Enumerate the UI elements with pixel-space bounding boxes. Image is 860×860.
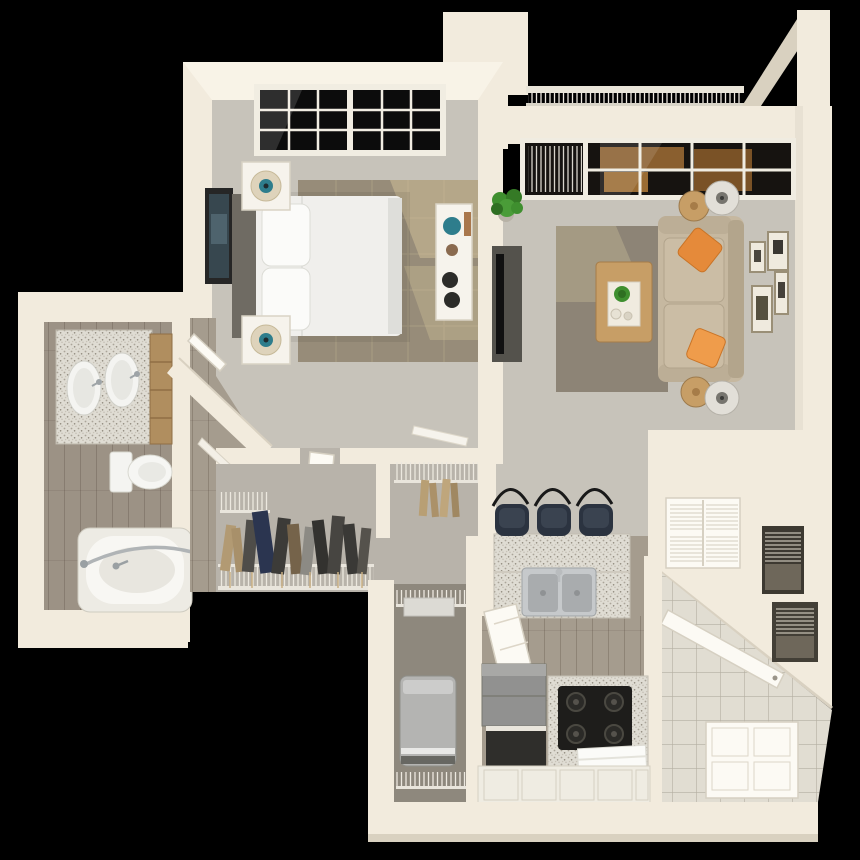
washer-dryer [400, 676, 456, 766]
nightstand-lamp-top [251, 171, 281, 201]
entry-hall [648, 430, 832, 802]
lamp-drum-finial [720, 196, 724, 200]
laundry-shelf-bottom [396, 772, 468, 788]
laundry-shelf-bottom-rail [396, 786, 468, 789]
sliding-door-vertical-blinds [528, 146, 582, 192]
vanity [56, 330, 172, 444]
kitchen-corner-wall [466, 536, 496, 618]
linen-niche-2 [772, 602, 818, 662]
bedroom-window [254, 84, 446, 156]
dresser-tray-2 [444, 292, 460, 308]
lamp-finial [264, 338, 269, 343]
dresser [436, 204, 472, 320]
side-table-top-center [690, 202, 698, 210]
niche-shelf-shadow [765, 564, 801, 590]
louvered-closet-doors [666, 498, 740, 568]
laundry-storage-box [404, 598, 454, 616]
coffee-table-plate-2 [624, 312, 632, 320]
balcony-railing-top-rail [526, 86, 744, 93]
sink-drain-right [574, 590, 580, 596]
bathroom [18, 292, 192, 648]
entry-flat-door [706, 722, 798, 798]
lamp-finial [264, 184, 269, 189]
washer-control-panel [403, 680, 453, 694]
floor-plan-canvas [0, 0, 860, 860]
stool-seat-top [541, 508, 567, 528]
vanity-sink-2-basin [111, 360, 133, 400]
kitchen-sink [522, 568, 596, 616]
shelf-wires-right [394, 462, 478, 482]
bathroom-left-wall [18, 292, 44, 648]
coffee-table [596, 262, 652, 342]
floor-lamp-bottom [705, 381, 739, 415]
range [548, 676, 648, 771]
nightstand-lamp-bottom [251, 325, 281, 355]
shower-head [80, 560, 88, 568]
sink-drain-left [540, 590, 546, 596]
vanity-sink-1-basin [73, 368, 95, 408]
floor-lamp-top [705, 181, 739, 215]
fridge-top [482, 664, 546, 676]
washer-base [401, 756, 455, 764]
niche-shelf-shadow [776, 636, 814, 658]
closet-divider-wall [376, 464, 390, 538]
television [496, 254, 504, 354]
burner-cap [573, 731, 579, 737]
plant-leaf [491, 203, 503, 215]
sofa [658, 216, 744, 382]
niche-blinds [765, 530, 801, 562]
plant-leaf [511, 202, 523, 214]
side-table-bottom-center [692, 388, 700, 396]
shelf-wires-upper [220, 492, 270, 512]
shelf-right-rail [394, 480, 478, 483]
dresser-teal-vase [443, 217, 461, 235]
bedroom-art-detail [211, 214, 227, 244]
louver-slats [670, 504, 702, 530]
bottom-outer-wall-edge [368, 834, 818, 842]
bathtub [78, 528, 192, 612]
bed-duvet-edge [388, 198, 402, 334]
balcony-wall-column-right [797, 10, 830, 120]
vanity-wood-cabinets [150, 334, 172, 444]
washer-trim [401, 748, 455, 754]
tv-console [492, 246, 522, 362]
dishwasher-top-edge [486, 726, 546, 731]
toilet-seat [138, 462, 166, 482]
sofa-backrest [728, 220, 744, 378]
linen-niche-1 [762, 526, 804, 594]
louver-slats [706, 504, 738, 530]
cabinet-run [478, 766, 650, 804]
coffee-table-plant-center [618, 290, 626, 298]
entry-door-knob [773, 676, 778, 681]
dresser-photo-frame [464, 212, 471, 236]
wall-frame-4-art [778, 282, 785, 298]
refrigerator [482, 664, 546, 726]
wall-frame-2-art [773, 240, 783, 254]
dresser-candle [446, 244, 458, 256]
lamp-drum-finial [720, 396, 724, 400]
burner-cap [573, 699, 579, 705]
dishwasher [486, 726, 546, 766]
lower-cabinets [478, 766, 650, 804]
bathroom-bottom-wall [18, 610, 188, 648]
coffee-table-plate-1 [611, 309, 621, 319]
burner-cap [611, 699, 617, 705]
shelf-front-rail [218, 586, 374, 590]
bed-pillow-1 [262, 204, 310, 266]
stool-seat-top [499, 508, 525, 528]
bedroom-wall-art [205, 188, 233, 284]
burner-cap [611, 731, 617, 737]
flat-door-panel [706, 722, 798, 798]
living-right-wall-shade [795, 106, 803, 436]
wall-frame-3-art [756, 296, 768, 320]
bedroom-window-divider [347, 90, 353, 150]
living-window-wall [520, 138, 796, 200]
bathroom-top-wall [18, 292, 188, 322]
dresser-tray-1 [442, 272, 458, 288]
sliding-door-divider [583, 143, 588, 195]
louver-slats [670, 536, 702, 562]
stool-seat-top [583, 508, 609, 528]
wall-frame-1-art [754, 250, 761, 262]
dishwasher-front [486, 728, 546, 766]
louver-slats [706, 536, 738, 562]
niche-blinds [776, 606, 814, 634]
toilet [110, 452, 172, 492]
floor-plan-render [0, 0, 860, 860]
laundry-closet [394, 584, 470, 808]
